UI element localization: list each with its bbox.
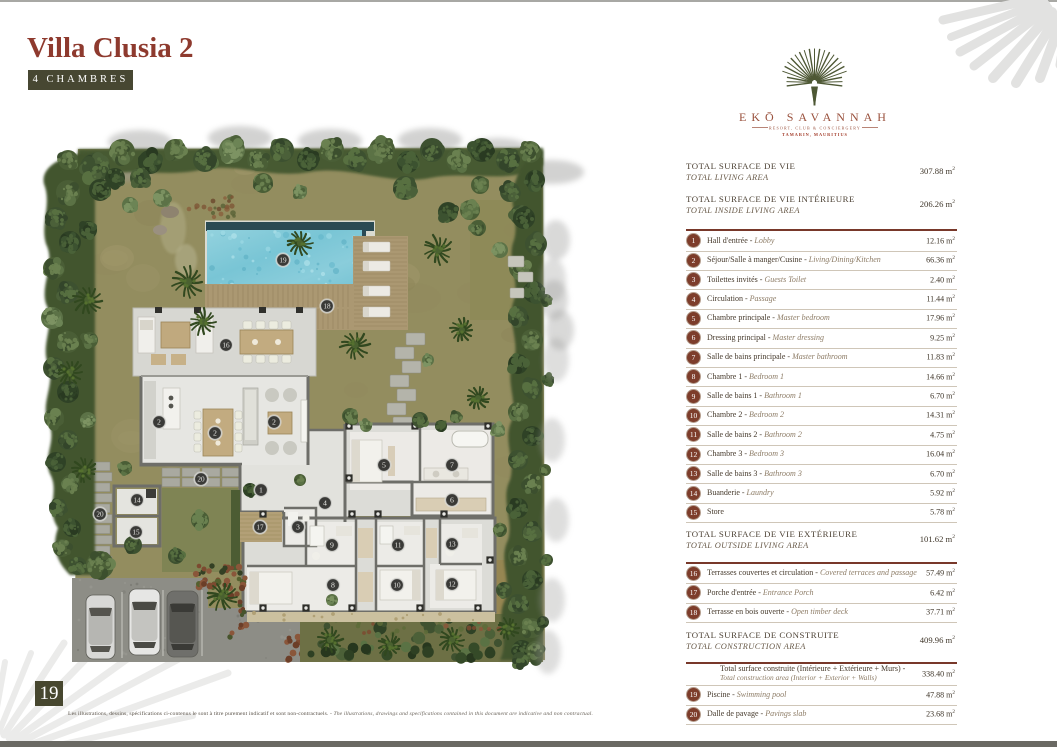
svg-text:8: 8	[331, 581, 335, 590]
svg-text:2: 2	[272, 418, 276, 427]
svg-text:3: 3	[296, 523, 300, 532]
svg-text:6: 6	[450, 496, 454, 505]
svg-text:RESORT, CLUB & CONCIERGERY: RESORT, CLUB & CONCIERGERY	[769, 125, 861, 131]
svg-text:4: 4	[323, 499, 327, 508]
svg-text:13: 13	[448, 541, 456, 549]
svg-text:9: 9	[330, 541, 334, 550]
svg-text:20: 20	[96, 511, 104, 519]
svg-text:15: 15	[132, 529, 140, 537]
svg-text:20: 20	[197, 476, 205, 484]
svg-text:10: 10	[393, 582, 401, 590]
svg-text:2: 2	[157, 418, 161, 427]
svg-text:TAMARIN, MAURITIUS: TAMARIN, MAURITIUS	[782, 132, 848, 137]
svg-text:19: 19	[279, 257, 287, 265]
svg-text:2: 2	[213, 429, 217, 438]
svg-text:11: 11	[395, 542, 402, 550]
svg-text:17: 17	[256, 524, 264, 532]
svg-text:16: 16	[222, 342, 230, 350]
svg-text:7: 7	[450, 461, 454, 470]
svg-text:5: 5	[382, 461, 386, 470]
svg-text:14: 14	[133, 497, 141, 505]
svg-text:18: 18	[323, 303, 331, 311]
svg-text:12: 12	[448, 581, 456, 589]
svg-text:EKŌ SAVANNAH: EKŌ SAVANNAH	[739, 110, 891, 124]
svg-text:1: 1	[259, 486, 263, 495]
